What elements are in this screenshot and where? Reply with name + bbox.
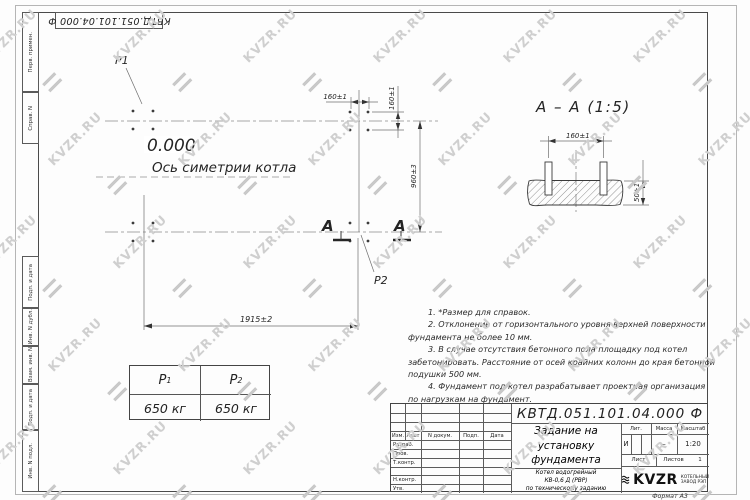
tb-mass-value: – bbox=[651, 434, 677, 454]
margin-label: Взам. инв. N bbox=[28, 347, 34, 382]
svg-text:1915±2: 1915±2 bbox=[240, 315, 272, 324]
tb-subtitle-line: по техническому заданию bbox=[511, 485, 621, 493]
note-line: забетонировать. Расстояние от осей крайн… bbox=[408, 356, 710, 368]
tb-header-izm: Изм. bbox=[391, 431, 405, 440]
note-line: 3. В случае отсутствия бетонного пола пл… bbox=[408, 343, 710, 355]
tb-row-nkontr: Н.контр. bbox=[391, 475, 421, 484]
tb-lit-value: И bbox=[621, 434, 631, 454]
tb-title-line: Задание на bbox=[511, 424, 621, 439]
plan-extension-lines bbox=[144, 90, 404, 330]
p-sub: 1 bbox=[166, 376, 171, 385]
svg-text:160±1: 160±1 bbox=[388, 86, 396, 110]
tb-title-line: фундамента bbox=[511, 453, 621, 468]
svg-text:50±1: 50±1 bbox=[633, 183, 641, 202]
p-base: P bbox=[159, 373, 167, 388]
margin-box-inv-dubl: Инв. N дубл. bbox=[22, 308, 39, 346]
section-view-a-a: А – А (1:5) 160±1 50±1 bbox=[500, 88, 725, 213]
margin-box-podp-data-upper: Подп. и дата bbox=[22, 256, 39, 308]
dim-960: 960±3 bbox=[410, 121, 422, 232]
load-point-p1-label: P1 bbox=[115, 54, 129, 67]
symmetry-axis-label: Ось симетрии котла bbox=[152, 160, 296, 176]
tb-line bbox=[391, 413, 511, 414]
top-designation-stamp: КВТД.051.101.04.000 Ф bbox=[55, 12, 163, 29]
margin-label: Инв. N дубл. bbox=[28, 309, 34, 344]
tb-header-podp: Подп. bbox=[459, 431, 483, 440]
dim-1915: 1915±2 bbox=[144, 315, 358, 329]
tb-line bbox=[391, 422, 511, 423]
tb-title-line: установку bbox=[511, 439, 621, 454]
note-line: 1. *Размер для справок. bbox=[408, 306, 710, 318]
tb-designation: КВТД.051.101.04.000 Ф bbox=[511, 404, 709, 423]
tb-line bbox=[391, 467, 511, 468]
load-table-value-p2: 650 кг bbox=[201, 395, 271, 421]
tb-mass-header: Масса bbox=[651, 423, 677, 434]
logo-caption-line: ЗАВОД РЭП bbox=[681, 480, 709, 485]
kvzr-logo-caption: КОТЕЛЬНЫЙ ЗАВОД РЭП bbox=[681, 475, 709, 485]
margin-box-perv-primen: Перв. примен. bbox=[22, 12, 39, 92]
tb-row-razrab: Разраб. bbox=[391, 440, 421, 449]
tb-subtitle-line: КВ-0,6 Д (РВР) bbox=[511, 477, 621, 485]
kvzr-logo-text: KVZR bbox=[633, 472, 678, 488]
note-line: подушки 500 мм. bbox=[408, 368, 710, 380]
load-point-p2-label: P2 bbox=[374, 274, 388, 287]
anchor-bolt-dots bbox=[132, 110, 370, 243]
tb-scale-header: Масштаб bbox=[677, 423, 709, 434]
margin-label: Подп. и дата bbox=[28, 264, 34, 301]
note-line: 2. Отклонение от горизонтального уровня … bbox=[408, 318, 710, 330]
tb-line bbox=[631, 434, 632, 454]
section-title: А – А (1:5) bbox=[535, 98, 631, 116]
load-table-header-p2: P2 bbox=[201, 366, 271, 394]
tb-scale-value: 1:20 bbox=[677, 434, 709, 454]
margin-box-sprav-n: Справ. N bbox=[22, 92, 39, 144]
foundation-plan-view: 0.000 Ось симетрии котла P1 P2 160±1 160… bbox=[90, 48, 470, 338]
p-sub: 2 bbox=[237, 376, 242, 385]
tb-header-data: Дата bbox=[483, 431, 511, 440]
note-line: фундамента не более 10 мм. bbox=[408, 331, 710, 343]
margin-box-vzam-inv: Взам. инв. N bbox=[22, 346, 39, 384]
load-table-value-p1: 650 кг bbox=[130, 395, 200, 421]
section-letter-right: A bbox=[393, 217, 406, 235]
tb-row-prov: Пров. bbox=[391, 449, 421, 458]
section-letter-left: A bbox=[321, 217, 334, 235]
margin-box-podp-data-lower: Подп. и дата bbox=[22, 384, 39, 430]
tb-header-list: Лист bbox=[405, 431, 421, 440]
kvzr-logo-icon bbox=[621, 472, 630, 487]
tb-line bbox=[641, 434, 642, 454]
margin-label: Инв. N подл. bbox=[28, 443, 34, 479]
tb-row-utv: Утв. bbox=[391, 484, 421, 493]
margin-label: Справ. N bbox=[28, 106, 34, 131]
note-line: 4. Фундамент под котел разрабатывает про… bbox=[408, 380, 710, 392]
logo-caption-line: КОТЕЛЬНЫЙ bbox=[681, 475, 709, 480]
svg-text:160±1: 160±1 bbox=[323, 93, 347, 101]
margin-box-inv-podl: Инв. N подл. bbox=[22, 430, 39, 492]
foundation-block-hatched bbox=[528, 180, 623, 206]
tb-header-ndokum: N докум. bbox=[421, 431, 459, 440]
format-label: Формат А3 bbox=[615, 493, 725, 500]
margin-label: Перв. примен. bbox=[28, 32, 34, 72]
tb-row-tkontr: Т.контр. bbox=[391, 458, 421, 467]
kvzr-logo: KVZR КОТЕЛЬНЫЙ ЗАВОД РЭП bbox=[621, 466, 709, 493]
p1-leader-line bbox=[126, 68, 142, 104]
tb-lit-header: Лит. bbox=[621, 423, 651, 434]
section-cut-marks: A A bbox=[321, 217, 411, 240]
anchor-bolt-left bbox=[545, 162, 552, 195]
top-designation-text: КВТД.051.101.04.000 Ф bbox=[48, 15, 171, 26]
tb-doc-title: Задание на установку фундамента bbox=[511, 424, 621, 468]
title-block: Изм. Лист N докум. Подп. Дата Разраб. Пр… bbox=[390, 403, 708, 492]
level-mark: 0.000 bbox=[147, 136, 196, 156]
svg-text:960±3: 960±3 bbox=[410, 164, 418, 188]
anchor-bolt-right bbox=[600, 162, 607, 195]
p-base: P bbox=[230, 373, 238, 388]
margin-label: Подп. и дата bbox=[28, 389, 34, 426]
tb-sheets-cell: Листов 1 bbox=[656, 454, 709, 466]
tb-sheets-value: 1 bbox=[698, 457, 702, 463]
tb-sheet-label: Лист bbox=[621, 454, 656, 466]
load-table: P1 P2 650 кг 650 кг bbox=[129, 365, 270, 420]
tb-subtitle-line: Котел водогрейный bbox=[511, 469, 621, 477]
tb-doc-subtitle: Котел водогрейный КВ-0,6 Д (РВР) по техн… bbox=[511, 469, 621, 493]
technical-notes: 1. *Размер для справок. 2. Отклонение от… bbox=[408, 306, 710, 405]
load-table-header-p1: P1 bbox=[130, 366, 200, 394]
svg-text:160±1: 160±1 bbox=[566, 132, 590, 140]
section-dim-50: 50±1 bbox=[623, 160, 649, 205]
tb-sheets-label: Листов bbox=[663, 457, 684, 463]
